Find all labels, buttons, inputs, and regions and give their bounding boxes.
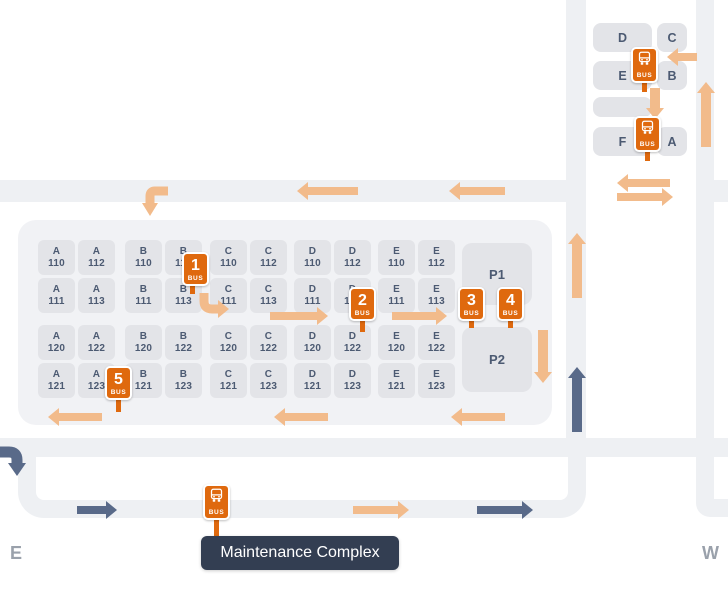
route-turn-arrow-top-road [140,183,168,221]
building-a111: A111 [38,278,75,313]
building-d110: D110 [294,240,331,275]
building-a112: A112 [78,240,115,275]
building-a110: A110 [38,240,75,275]
route-arrow-bottom-east-3 [477,506,522,514]
building-c123: C123 [250,363,287,398]
route-arrow-lower-corridor-2 [285,413,328,421]
route-arrow-lower-corridor-3 [462,413,505,421]
route-arrow-topright-east [617,193,662,201]
building-d-label: D [618,31,627,45]
building-e121: E121 [378,363,415,398]
parking-p1-label: P1 [489,267,505,282]
bus-stop-3-bus-label: BUS [464,310,480,317]
route-arrow-top-west-2 [460,187,505,195]
route-arrow-corridor-2 [392,312,436,320]
route-arrow-inner-road-up [572,244,582,298]
building-c110: C110 [210,240,247,275]
compass-east: E [10,543,22,564]
building-d120: D120 [294,325,331,360]
maintenance-complex-badge: Maintenance Complex [201,536,399,570]
route-arrow-topright-west [628,179,670,187]
maintenance-complex-label: Maintenance Complex [220,544,379,562]
bus-stop-1[interactable]: 1 BUS [182,252,209,286]
parking-p2-label: P2 [489,352,505,367]
bus-stop-3-number: 3 [467,293,476,309]
bus-stop-3[interactable]: 3 BUS [458,287,485,321]
building-a120: A120 [38,325,75,360]
bus-stop-2[interactable]: 2 BUS [349,287,376,321]
route-arrow-parking-down [538,330,548,372]
building-e122: E122 [418,325,455,360]
cluster-bus-stop-lower[interactable]: BUS [634,116,661,152]
cluster-stop-upper-bus-label: BUS [637,72,653,79]
building-b-label: B [667,69,676,83]
bus-icon [640,120,655,140]
route-arrow-bottom-east-1 [77,506,106,514]
building-b111: B111 [125,278,162,313]
maintenance-stop-pole [214,517,219,537]
bus-stop-2-number: 2 [358,293,367,309]
building-b110: B110 [125,240,162,275]
bus-stop-2-bus-label: BUS [355,310,371,317]
building-f-label: F [619,135,627,149]
building-e120: E120 [378,325,415,360]
bus-stop-5-bus-label: BUS [111,389,127,396]
building-a113: A113 [78,278,115,313]
building-d121: D121 [294,363,331,398]
building-a121: A121 [38,363,75,398]
route-turn-arrow-stop1 [196,293,230,326]
bus-stop-5-pole [116,398,121,412]
building-c112: C112 [250,240,287,275]
route-arrow-cluster-west [678,53,697,61]
building-c113: C113 [250,278,287,313]
building-c-label: C [667,31,676,45]
road-bottom-right-stub [710,499,728,517]
bus-icon [637,51,652,71]
route-arrow-lower-corridor-1 [59,413,102,421]
bus-stop-5[interactable]: 5 BUS [105,366,132,400]
compass-west: W [702,543,719,564]
route-arrow-corridor-1 [270,312,317,320]
building-d112: D112 [334,240,371,275]
bus-stop-1-bus-label: BUS [188,275,204,282]
route-arrow-bottom-east-2 [353,506,398,514]
route-arrow-inner-road-up-dark [572,378,582,432]
bus-stop-5-number: 5 [114,372,123,388]
bus-route-map: A110A112A111A113A120A122A121A123B110B112… [0,0,728,591]
building-unlabeled [593,97,652,117]
bus-stop-4[interactable]: 4 BUS [497,287,524,321]
building-c122: C122 [250,325,287,360]
building-e-label: E [618,69,626,83]
maintenance-bus-stop[interactable]: BUS [203,484,230,520]
building-e112: E112 [418,240,455,275]
route-arrow-cluster-down [650,88,660,108]
bus-icon [209,488,224,508]
cluster-stop-lower-bus-label: BUS [640,141,656,148]
maintenance-stop-bus-label: BUS [209,509,225,516]
building-a: A [657,127,687,156]
cluster-bus-stop-upper[interactable]: BUS [631,47,658,83]
bus-stop-1-number: 1 [191,258,200,274]
building-a-label: A [667,135,676,149]
building-a122: A122 [78,325,115,360]
parking-p2: P2 [462,327,532,392]
route-arrow-top-west-1 [308,187,358,195]
building-b123: B123 [165,363,202,398]
building-c120: C120 [210,325,247,360]
route-arrow-outer-road-up [701,93,711,147]
building-e110: E110 [378,240,415,275]
building-e123: E123 [418,363,455,398]
route-turn-arrow-west-entry [0,444,34,480]
building-c121: C121 [210,363,247,398]
building-b122: B122 [165,325,202,360]
building-d123: D123 [334,363,371,398]
bus-stop-4-bus-label: BUS [503,310,519,317]
building-d122: D122 [334,325,371,360]
building-b120: B120 [125,325,162,360]
bus-stop-4-number: 4 [506,293,515,309]
building-e111: E111 [378,278,415,313]
